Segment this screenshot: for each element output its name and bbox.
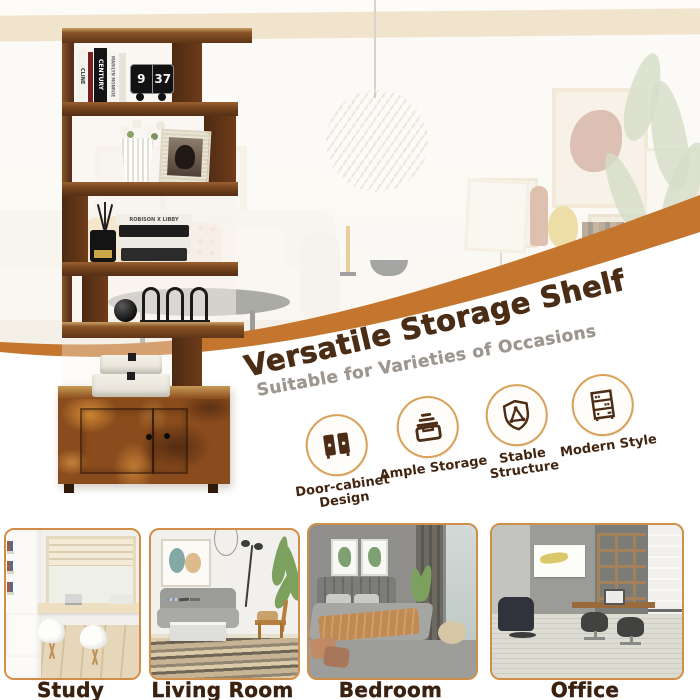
feature-modern-style: Modern Style [547, 367, 661, 461]
shelf-top-board [62, 28, 252, 43]
study-drawer-unit [6, 613, 38, 657]
shelf-board [62, 322, 244, 338]
study-roman-blind [49, 539, 133, 566]
office-chair [617, 617, 644, 637]
room-label-bedroom: Bedroom [307, 678, 474, 700]
cabinet-foot [64, 484, 74, 493]
stacked-book [119, 225, 189, 237]
botanical-print [361, 539, 388, 577]
floor-lamp [245, 545, 253, 607]
clock-minute: 37 [153, 65, 174, 93]
stable-structure-icon [498, 396, 536, 434]
shelf-side-panel [62, 43, 74, 102]
office-armchair [498, 597, 534, 631]
office-wall-art [534, 545, 585, 577]
shelf-divider [172, 43, 202, 102]
lamp-head [241, 540, 250, 547]
feature-circle [393, 392, 463, 462]
study-room-photo [6, 530, 139, 678]
feature-circle [568, 370, 638, 440]
study-chair [80, 625, 107, 649]
office-railing [648, 609, 682, 612]
diffuser-bottle [90, 230, 116, 262]
book-spine: MARILYN MONROE [108, 51, 118, 102]
study-shelf-books [7, 541, 13, 551]
cabinet-door-right [152, 408, 188, 474]
shelf-side-panel [62, 276, 72, 322]
clock-foot [158, 93, 166, 101]
bookend-arch [166, 287, 184, 322]
cabinet-door-left [80, 408, 154, 474]
room-label-office: Office [490, 678, 680, 700]
book-spine [88, 52, 93, 102]
box-clasp [128, 353, 136, 361]
room-label-study-room: Study Room [4, 678, 137, 700]
shelf-board [62, 182, 238, 196]
study-chair [38, 619, 65, 643]
study-shelf-books [7, 561, 13, 571]
product-shelf-photo: CLINE CENTURY MARILYN MONROE 9 37 [56, 24, 256, 502]
chair-base [620, 642, 641, 645]
book-spine: CENTURY [94, 48, 107, 102]
shelf-divider [62, 196, 88, 262]
door-cabinet-icon [318, 426, 356, 464]
art-shape [169, 548, 185, 574]
art-shape [185, 553, 200, 573]
metal-bookends [142, 286, 208, 322]
floor-pillow [323, 646, 350, 668]
office-chair [581, 612, 608, 632]
office-monitor [604, 589, 625, 605]
study-desk [38, 603, 139, 613]
stacked-book [117, 237, 191, 248]
storage-box-large [92, 374, 170, 397]
ample-storage-icon [409, 408, 447, 446]
door-knob [164, 433, 170, 439]
clock-foot [136, 93, 144, 101]
clock-hour: 9 [131, 65, 152, 93]
living-wall-art [161, 539, 211, 587]
product-banner: Versatile Storage Shelf Suitable for Var… [0, 0, 700, 700]
flower [132, 119, 142, 129]
diffuser-label [94, 250, 112, 258]
shelf-side-panel [62, 116, 72, 182]
wire-pendant-lamp [214, 528, 238, 556]
flower-leaf [127, 131, 134, 138]
office-photo [492, 525, 682, 678]
picture-frame [159, 129, 212, 186]
flip-clock: 9 37 [130, 64, 172, 102]
print-plant [368, 547, 381, 567]
shelf-board [62, 102, 238, 116]
sofa-pillow [179, 597, 189, 601]
room-card-living-room [149, 528, 300, 680]
botanical-print [331, 539, 358, 577]
bedroom-photo [309, 525, 476, 678]
flip-clock-body: 9 37 [130, 64, 174, 94]
shelf-board [62, 262, 238, 276]
door-knob [146, 434, 152, 440]
box-clasp [127, 372, 135, 380]
portrait-photo [167, 137, 203, 177]
bookend-arch [142, 287, 160, 322]
portrait-silhouette [175, 144, 195, 169]
stacked-book [121, 248, 187, 261]
study-shelf-books [7, 582, 13, 592]
shelf-divider [82, 276, 108, 322]
room-card-study-room [4, 528, 141, 680]
book-spine: CLINE [77, 50, 87, 102]
decor-sphere [114, 299, 137, 322]
decor-books-upright: CLINE CENTURY MARILYN MONROE [77, 48, 126, 102]
study-shelf [7, 592, 14, 595]
bookend-arch [190, 287, 208, 322]
shelf-cabinet [58, 386, 230, 484]
reed-diffuser-sticks [92, 204, 116, 230]
cabinet-foot [208, 484, 218, 493]
study-laptop [65, 594, 82, 605]
living-coffee-table [170, 622, 226, 641]
modern-style-icon [584, 386, 622, 424]
feature-circle [302, 410, 372, 480]
study-shelf [7, 571, 14, 574]
chair-base [584, 637, 605, 640]
print-plant [338, 547, 351, 567]
diffuser-stick [105, 204, 113, 230]
room-card-bedroom [307, 523, 478, 680]
study-shelf [7, 551, 14, 554]
sofa-pillow [190, 598, 199, 601]
study-printer [110, 594, 133, 604]
book-spine [119, 53, 126, 102]
living-room-photo [151, 530, 298, 678]
feature-circle [482, 380, 552, 450]
stacked-books: ROBISON X LIBBY [116, 214, 196, 262]
striped-rug [151, 638, 298, 678]
room-card-office [490, 523, 684, 680]
art-stroke [539, 551, 568, 564]
stacked-book: ROBISON X LIBBY [116, 214, 192, 225]
room-label-living-room: Living Room [149, 678, 296, 700]
lamp-head [254, 543, 263, 550]
shelf-divider [172, 338, 202, 386]
sofa-pillow [167, 598, 177, 601]
